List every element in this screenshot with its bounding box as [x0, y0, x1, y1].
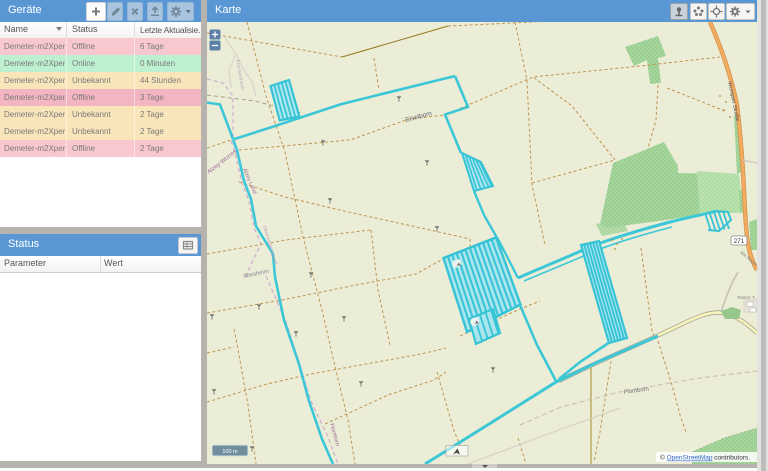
- svg-text:© OpenStreetMap contributors.: © OpenStreetMap contributors.: [660, 454, 750, 462]
- svg-text:100 m: 100 m: [222, 449, 238, 455]
- svg-text:Tankst. T...: Tankst. T...: [737, 295, 757, 300]
- svg-text:271: 271: [734, 238, 745, 245]
